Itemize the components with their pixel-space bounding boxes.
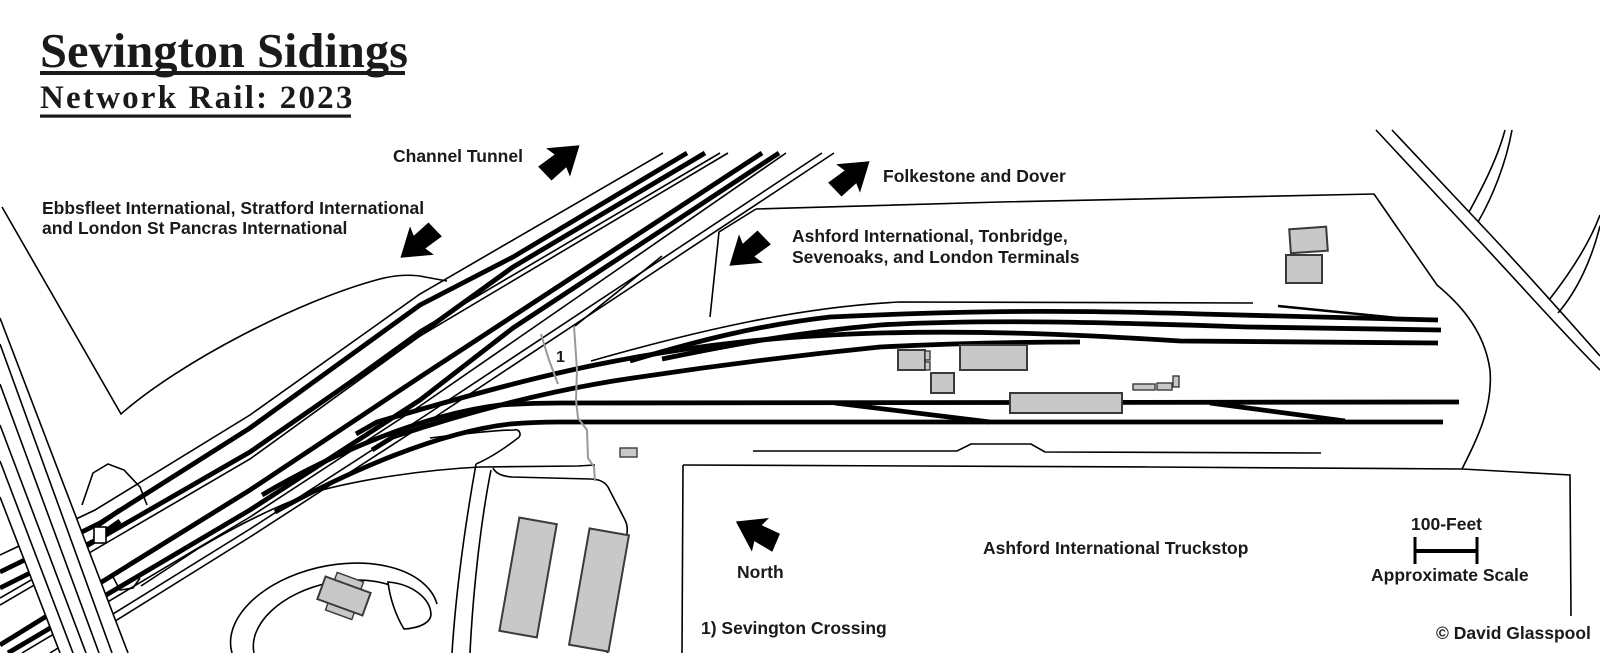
svg-text:Sevington Sidings: Sevington Sidings [40,25,408,78]
svg-text:100-Feet: 100-Feet [1411,514,1482,534]
svg-text:1) Sevington Crossing: 1) Sevington Crossing [701,618,887,638]
svg-text:Ebbsfleet International, Strat: Ebbsfleet International, Stratford Inter… [42,198,424,218]
svg-text:Sevenoaks, and London Terminal: Sevenoaks, and London Terminals [792,247,1080,267]
svg-text:Channel Tunnel: Channel Tunnel [393,146,523,166]
svg-text:Folkestone and Dover: Folkestone and Dover [883,166,1066,186]
svg-text:North: North [737,562,784,582]
svg-text:and London St Pancras Internat: and London St Pancras International [42,218,347,238]
svg-text:Ashford International Trucksto: Ashford International Truckstop [983,538,1248,558]
svg-text:Approximate Scale: Approximate Scale [1371,565,1529,585]
svg-text:© David Glasspool: © David Glasspool [1436,623,1591,643]
svg-text:Network Rail: 2023: Network Rail: 2023 [40,80,355,116]
svg-text:Ashford International, Tonbrid: Ashford International, Tonbridge, [792,226,1068,246]
svg-text:1: 1 [556,349,565,366]
